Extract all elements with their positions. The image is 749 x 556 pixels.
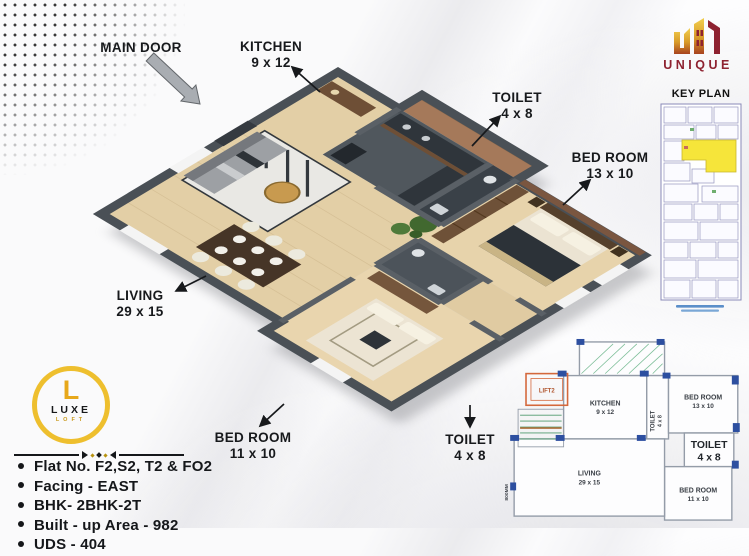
- label-living: LIVING29 x 15: [116, 288, 163, 321]
- unique-logo-text: UNIQUE: [663, 58, 733, 72]
- bullet-icon: [18, 463, 24, 469]
- key-plan-caption: [676, 305, 724, 312]
- svg-text:29 x 15: 29 x 15: [579, 479, 601, 486]
- main-door-arrow: [146, 53, 200, 104]
- label-kitchen: KITCHEN9 x 12: [240, 39, 302, 72]
- label-bedroom-right: BED ROOM13 x 10: [572, 150, 649, 183]
- svg-text:4 x 8: 4 x 8: [698, 453, 721, 464]
- bullet-icon: [18, 521, 24, 527]
- mini-plan-lift: LIFT2: [526, 374, 568, 406]
- svg-text:13 x 10: 13 x 10: [692, 403, 714, 410]
- svg-text:LIFT2: LIFT2: [539, 388, 555, 394]
- unique-logo-mark: [674, 18, 720, 54]
- list-item: UDS - 404: [16, 536, 246, 553]
- label-toilet-top: TOILET4 x 8: [492, 90, 542, 123]
- list-item: Built - up Area - 982: [16, 517, 246, 534]
- key-plan-title: KEY PLAN: [658, 88, 744, 100]
- bullet-icon: [18, 482, 24, 488]
- unique-logo: UNIQUE: [652, 8, 744, 76]
- floorplan-2d: LIFT2 KITCHEN 9 x 12 TOILET 4 x 8 BED RO…: [498, 336, 746, 526]
- svg-text:KITCHEN: KITCHEN: [590, 400, 621, 407]
- luxe-loft-logo: L LUXE LOFT: [32, 366, 110, 444]
- svg-text:4 x 8: 4 x 8: [658, 415, 664, 427]
- flat-details-list: Flat No. F2,S2, T2 & FO2 Facing - EAST B…: [16, 458, 246, 556]
- list-item: Flat No. F2,S2, T2 & FO2: [16, 458, 246, 475]
- svg-text:800MM: 800MM: [504, 484, 510, 500]
- bullet-icon: [18, 502, 24, 508]
- list-item: BHK- 2BHK-2T: [16, 497, 246, 514]
- key-plan: [654, 102, 746, 314]
- label-toilet-bottom: TOILET4 x 8: [445, 432, 495, 465]
- svg-text:BED ROOM: BED ROOM: [679, 487, 717, 494]
- svg-text:11 x 10: 11 x 10: [688, 496, 709, 503]
- list-item: Facing - EAST: [16, 478, 246, 495]
- svg-text:9 x 12: 9 x 12: [596, 409, 614, 416]
- bullet-icon: [18, 541, 24, 547]
- luxe-logo-subtitle: LOFT: [37, 417, 105, 423]
- luxe-logo-title: LUXE: [37, 404, 105, 416]
- luxe-logo-letter: L: [37, 377, 105, 403]
- svg-text:TOILET: TOILET: [691, 440, 728, 451]
- svg-text:TOILET: TOILET: [651, 410, 657, 431]
- svg-text:LIVING: LIVING: [578, 471, 601, 478]
- svg-text:BED ROOM: BED ROOM: [684, 394, 722, 401]
- label-main-door: MAIN DOOR: [100, 40, 181, 56]
